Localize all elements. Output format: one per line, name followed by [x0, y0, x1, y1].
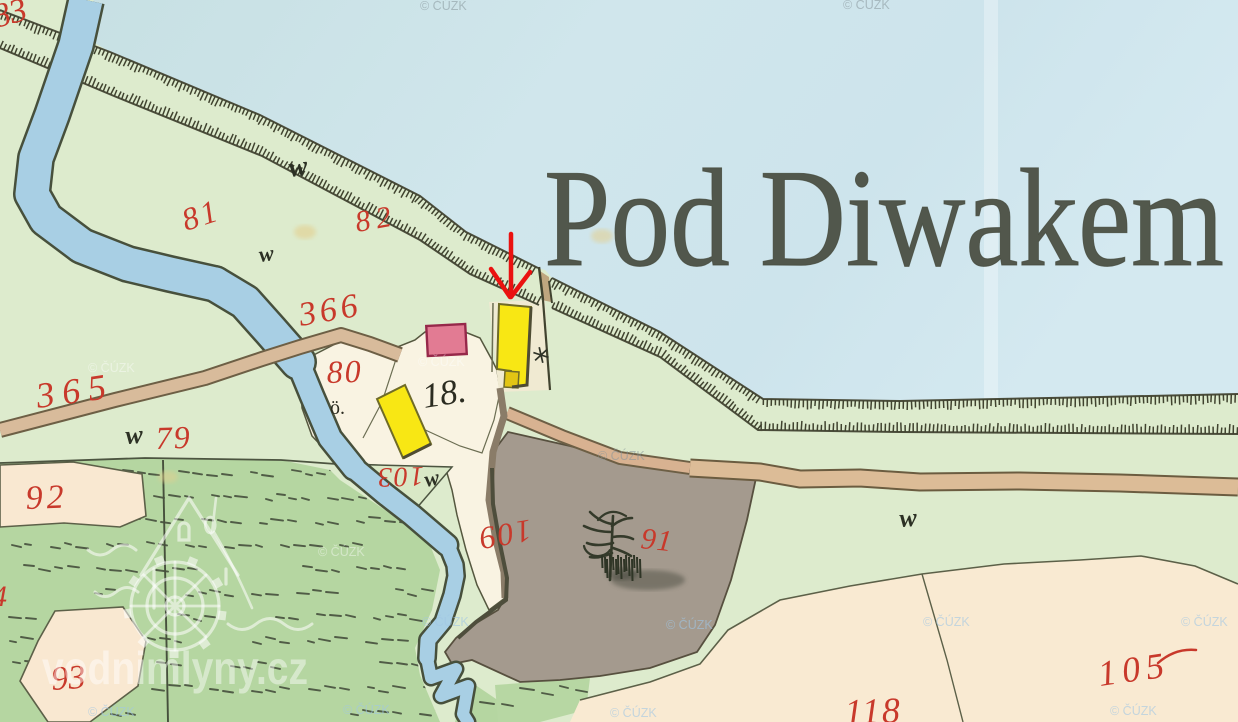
svg-text:103: 103 — [375, 460, 424, 493]
svg-text:© ČÚZK: © ČÚZK — [598, 448, 645, 463]
svg-text:79: 79 — [155, 419, 192, 456]
svg-text:© ČÚZK: © ČÚZK — [843, 0, 890, 12]
svg-text:vodnimlyny.cz: vodnimlyny.cz — [42, 642, 308, 694]
svg-text:ö.: ö. — [330, 397, 345, 419]
svg-text:© ČÚZK: © ČÚZK — [418, 354, 465, 369]
svg-text:Pod Diwakem: Pod Diwakem — [544, 141, 1224, 296]
svg-text:© ČÚZK: © ČÚZK — [88, 360, 135, 375]
svg-text:4: 4 — [0, 580, 7, 613]
svg-text:© ČÚZK: © ČÚZK — [88, 704, 135, 719]
svg-text:© ČÚZK: © ČÚZK — [610, 705, 657, 720]
svg-text:118: 118 — [844, 690, 903, 722]
svg-text:w: w — [898, 503, 918, 533]
svg-text:18.: 18. — [419, 371, 468, 416]
svg-text:91: 91 — [639, 522, 674, 558]
svg-text:80: 80 — [326, 353, 363, 390]
svg-text:© ČÚZK: © ČÚZK — [422, 614, 469, 629]
svg-text:© ČÚZK: © ČÚZK — [666, 617, 713, 632]
svg-text:© ČÚZK: © ČÚZK — [923, 614, 970, 629]
svg-text:© ČÚZK: © ČÚZK — [343, 702, 390, 717]
svg-text:© ČÚZK: © ČÚZK — [318, 544, 365, 559]
svg-text:w: w — [124, 420, 144, 450]
svg-text:© ČÚZK: © ČÚZK — [1181, 614, 1228, 629]
svg-text:© ČÚZK: © ČÚZK — [420, 0, 467, 13]
svg-text:© ČÚZK: © ČÚZK — [1110, 703, 1157, 718]
svg-text:92: 92 — [25, 479, 68, 517]
